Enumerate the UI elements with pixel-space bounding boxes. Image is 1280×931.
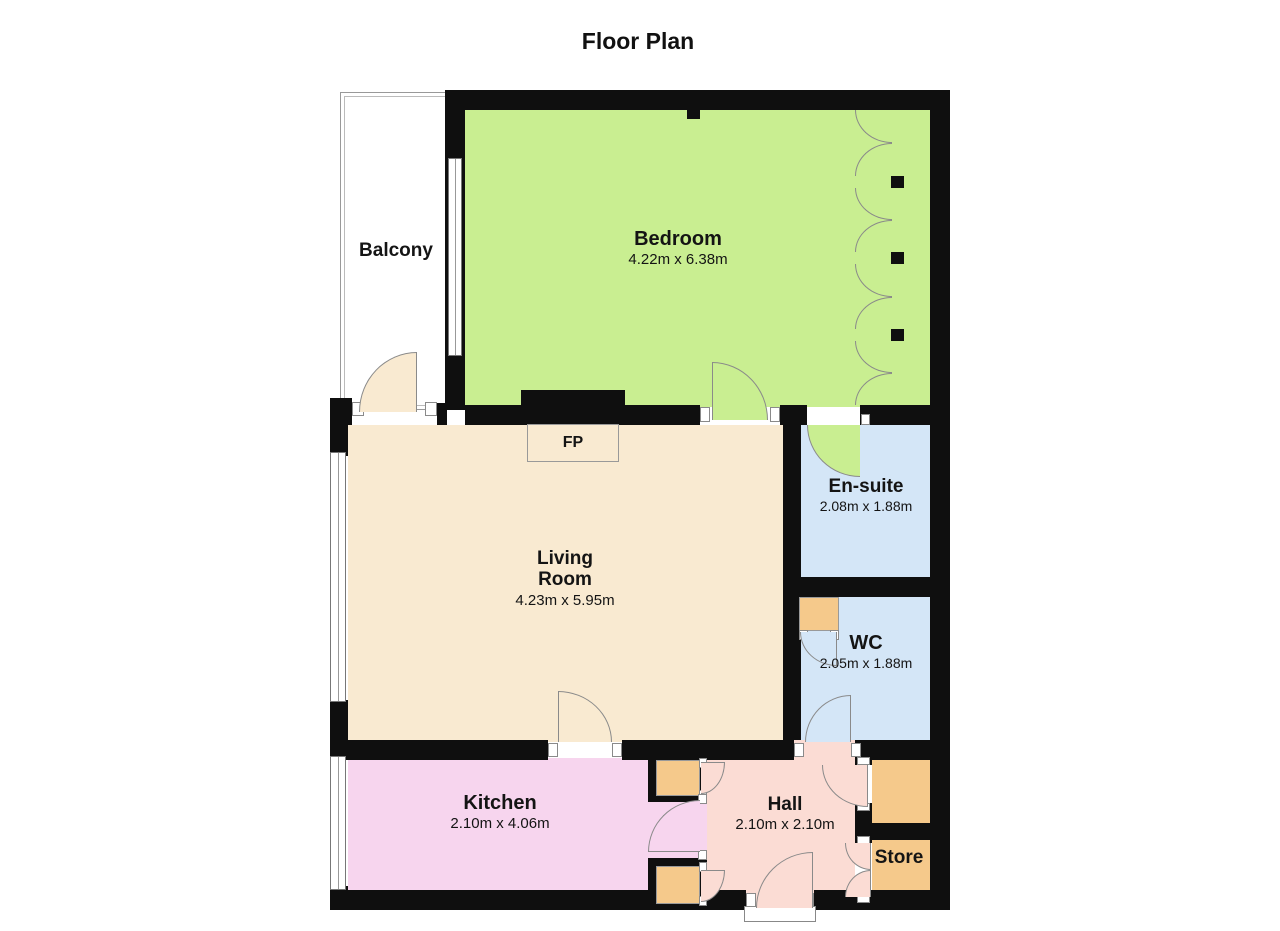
door-jamb <box>700 407 710 422</box>
page-title: Floor Plan <box>582 28 694 55</box>
wardrobe-hinge <box>891 252 904 264</box>
room-dims: 2.08m x 1.88m <box>820 497 913 516</box>
wall <box>861 740 950 760</box>
wall <box>330 740 548 760</box>
room-dims: 4.22m x 6.38m <box>628 250 727 270</box>
wall <box>860 405 950 425</box>
room-dims: 2.05m x 1.88m <box>820 654 913 673</box>
window <box>448 158 462 356</box>
fireplace-label: FP <box>563 434 583 452</box>
room-dims: 2.10m x 2.10m <box>735 815 834 835</box>
hall-cupboard-bottom <box>656 866 700 904</box>
room-name: Kitchen <box>450 792 549 814</box>
ensuite-label: En-suite 2.08m x 1.88m <box>820 476 913 516</box>
room-name: Room <box>515 569 614 590</box>
floor-plan: Floor Plan <box>0 0 1280 931</box>
door-jamb <box>612 743 622 757</box>
wall <box>814 890 950 910</box>
hall-label: Hall 2.10m x 2.10m <box>735 794 834 836</box>
wardrobe-hinge <box>891 98 904 110</box>
door-jamb <box>851 743 861 757</box>
door-jamb <box>861 414 870 425</box>
entrance-threshold <box>744 906 816 922</box>
store-label: Store <box>875 847 924 868</box>
room-name: Living <box>515 548 614 569</box>
wardrobe-hinge <box>892 405 904 421</box>
wall <box>783 577 950 597</box>
room-name: Hall <box>735 794 834 815</box>
room-dims: 4.23m x 5.95m <box>515 591 614 611</box>
room-name: Store <box>875 847 924 868</box>
wc-label: WC 2.05m x 1.88m <box>820 632 913 673</box>
room-name: Bedroom <box>628 228 727 250</box>
wall <box>437 403 447 425</box>
wc-cupboard <box>799 597 839 631</box>
room-name: En-suite <box>820 476 913 497</box>
wardrobe-hinge <box>891 176 904 188</box>
window <box>330 756 346 890</box>
door-jamb <box>425 402 437 416</box>
door-jamb <box>548 743 558 757</box>
wall <box>445 90 950 110</box>
kitchen-label: Kitchen 2.10m x 4.06m <box>450 792 549 835</box>
wall <box>330 398 352 425</box>
window <box>330 452 346 702</box>
door-jamb <box>746 893 756 907</box>
bedroom-label: Bedroom 4.22m x 6.38m <box>628 228 727 271</box>
fireplace: FP <box>527 424 619 462</box>
chimney-breast <box>521 390 625 425</box>
room-dims: 2.10m x 4.06m <box>450 814 549 834</box>
wall-stub <box>687 110 700 119</box>
door-jamb <box>770 407 780 422</box>
wall <box>930 90 950 910</box>
living-room-label: Living Room 4.23m x 5.95m <box>515 548 614 611</box>
door-jamb <box>794 743 804 757</box>
balcony-label: Balcony <box>359 240 433 261</box>
room-name: WC <box>820 632 913 654</box>
cupboard-room-floor <box>872 757 930 823</box>
hall-cupboard-top <box>656 760 700 796</box>
wall <box>780 405 807 425</box>
wardrobe-hinge <box>891 329 904 341</box>
room-name: Balcony <box>359 240 433 261</box>
door-jamb <box>857 757 870 765</box>
